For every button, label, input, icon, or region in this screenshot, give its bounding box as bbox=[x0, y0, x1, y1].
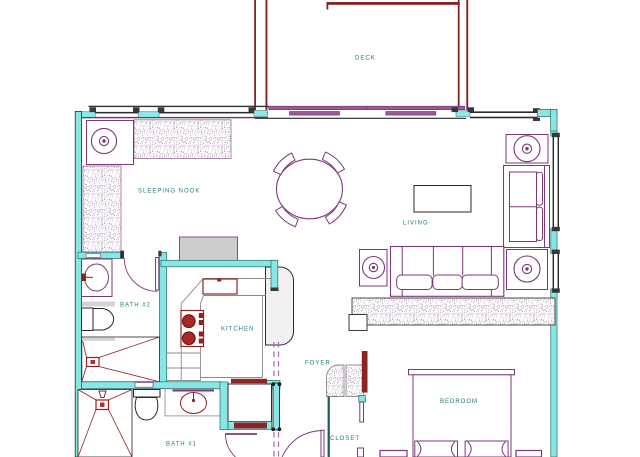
svg-text:DECK: DECK bbox=[355, 56, 376, 62]
svg-text:SLEEPING NOOK: SLEEPING NOOK bbox=[138, 189, 200, 195]
svg-text:BEDROOM: BEDROOM bbox=[440, 399, 478, 405]
svg-text:FOYER: FOYER bbox=[305, 361, 331, 367]
svg-text:LIVING: LIVING bbox=[403, 221, 429, 227]
svg-text:CLOSET: CLOSET bbox=[330, 436, 360, 442]
svg-text:BATH #2: BATH #2 bbox=[120, 303, 151, 309]
svg-text:KITCHEN: KITCHEN bbox=[221, 327, 254, 333]
svg-text:BATH #1: BATH #1 bbox=[166, 442, 197, 448]
